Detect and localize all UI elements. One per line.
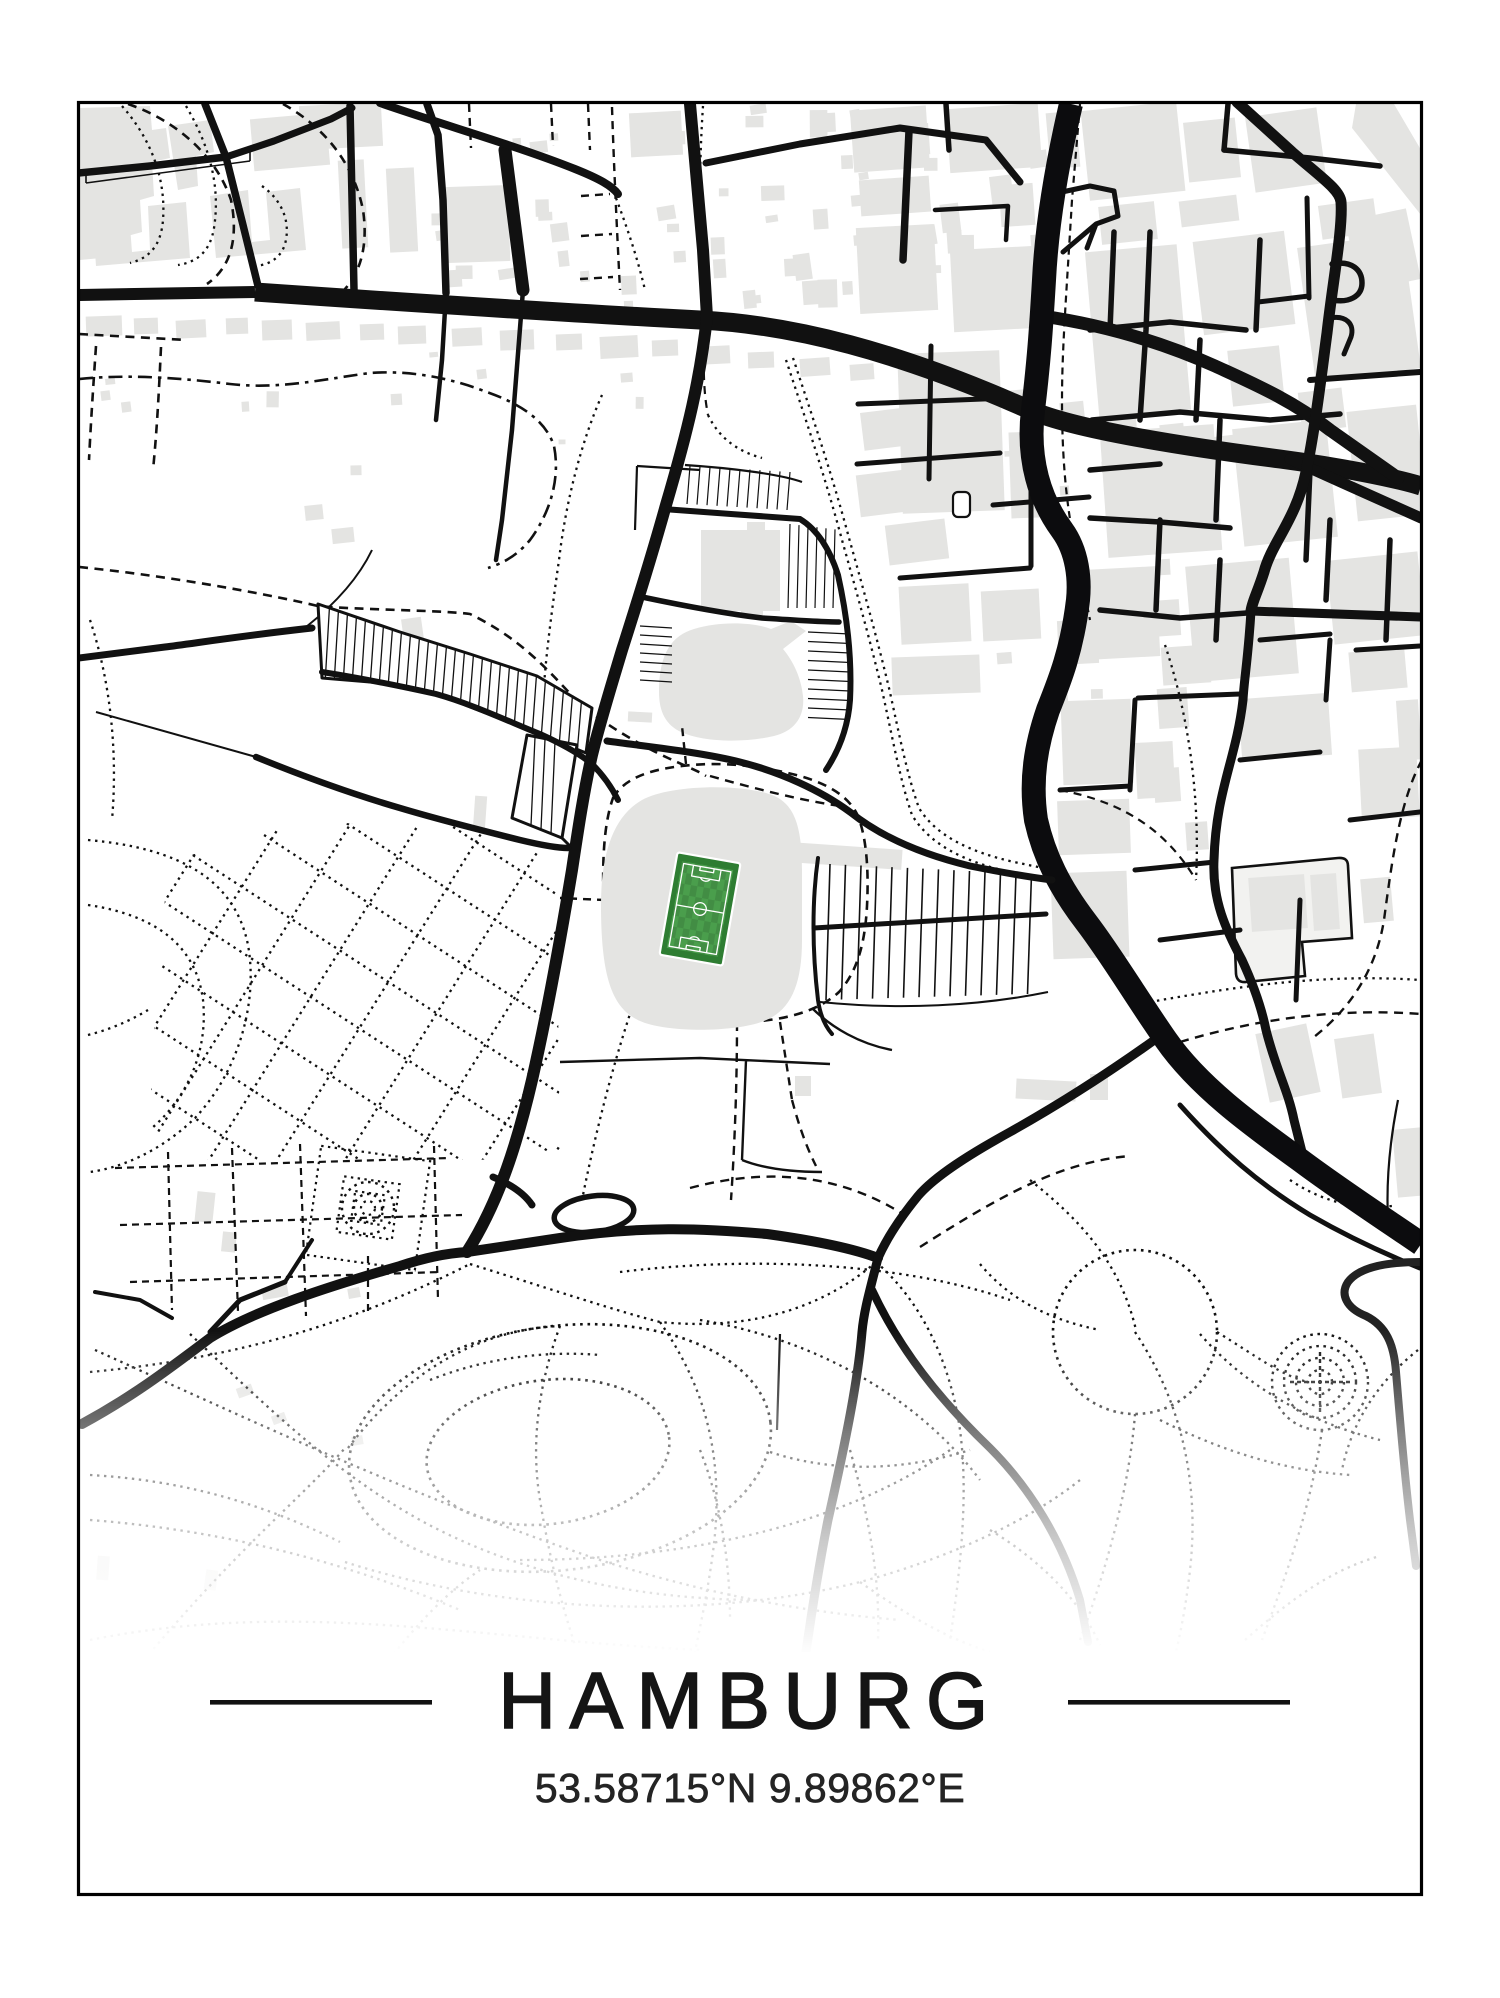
svg-text:HAMBURG: HAMBURG [498, 1656, 1001, 1745]
svg-text:53.58715°N 9.89862°E: 53.58715°N 9.89862°E [535, 1765, 965, 1811]
